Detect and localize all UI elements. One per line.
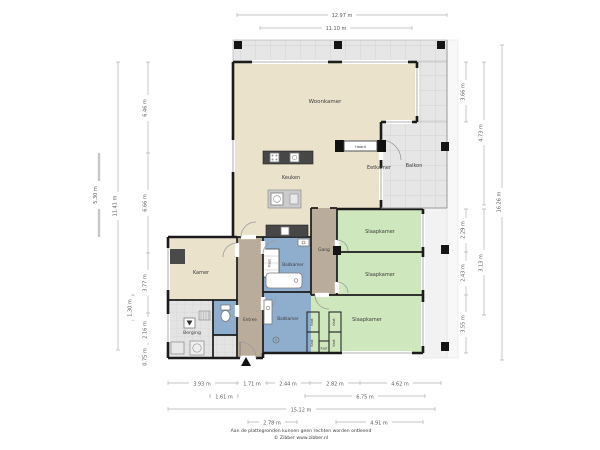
dim-bottom-seg: 1.61 m <box>215 395 233 401</box>
room-label-keuken: Keuken <box>282 175 300 181</box>
dim-left-seg: 6.46 m <box>143 99 149 117</box>
window <box>379 168 383 200</box>
dim-top-inner: 11.10 m <box>326 26 347 32</box>
window <box>342 60 408 64</box>
dim-bottom-total: 15.12 m <box>291 408 312 414</box>
floor-plan-canvas: Haard Woonkamer Keuken Eetkamer Balkon K… <box>0 0 600 450</box>
window <box>386 120 412 124</box>
window <box>421 302 425 346</box>
dim-right-3-13: 3.13 m <box>479 254 485 272</box>
room-label-kast: Kast <box>321 347 329 351</box>
room-fills <box>168 40 458 358</box>
room-bedroom-3 <box>311 295 423 353</box>
room-label-woonkamer: Woonkamer <box>309 99 343 105</box>
dim-left-seg: 2.16 m <box>143 321 149 339</box>
disclaimer-line-2: © Zibber www.zibber.nl <box>274 434 328 441</box>
window <box>166 314 170 342</box>
room-label-berging: Berging <box>183 330 201 336</box>
dim-bottom-seg: 2.82 m <box>326 382 344 388</box>
floor-plan: Haard Woonkamer Keuken Eetkamer Balkon K… <box>0 0 600 450</box>
column <box>441 342 449 351</box>
dim-bottom-seg: 1.71 m <box>243 382 261 388</box>
dim-right-total: 16.26 m <box>497 191 503 212</box>
outer-gallery-strip <box>447 40 458 358</box>
room-label-kast: Kast <box>268 259 272 267</box>
room-label-kast: Kast <box>332 339 336 347</box>
appliance-icon <box>281 227 289 235</box>
column <box>234 41 242 49</box>
toilet-tank-icon <box>221 305 230 310</box>
side-gallery <box>423 208 447 358</box>
room-entree <box>237 237 263 358</box>
fireplace-label: Haard <box>355 145 366 149</box>
window <box>231 140 235 172</box>
room-kamer <box>168 237 237 300</box>
dim-bottom-seg: 3.93 m <box>193 382 211 388</box>
dim-right-seg: 2.29 m <box>461 221 467 239</box>
column <box>437 41 445 49</box>
window <box>252 60 328 64</box>
room-label-badkamer-1: Badkamer <box>282 262 304 267</box>
fireplace: Haard <box>335 140 386 152</box>
dim-left-seg: 6.66 m <box>143 194 149 212</box>
room-label-badkamer-2: Badkamer <box>277 316 299 321</box>
column <box>333 246 341 255</box>
sink-icon <box>290 153 299 162</box>
dim-left-seg: 3.77 m <box>143 274 149 292</box>
dim-left-11-41: 11.41 m <box>113 195 119 216</box>
dim-left-5-30: 5.30 m <box>93 186 99 204</box>
dim-bottom-seg: 4.91 m <box>370 421 388 427</box>
room-label-slaapkamer-1: Slaapkamer <box>365 229 396 235</box>
room-label-slaapkamer-3: Slaapkamer <box>352 317 383 323</box>
dim-bottom-seg: 6.75 m <box>356 395 374 401</box>
room-label-kamer: Kamer <box>193 270 210 276</box>
bathtub-icon <box>266 273 302 288</box>
shaft <box>170 249 185 264</box>
column <box>441 142 449 151</box>
column <box>334 41 342 49</box>
room-label-slaapkamer-2: Slaapkamer <box>365 272 396 278</box>
disclaimer-line-1: Aan de plattegronden kunnen geen rechten… <box>231 428 372 434</box>
room-label-eetkamer: Eetkamer <box>367 165 392 171</box>
dim-top-outer: 12.97 m <box>332 13 353 19</box>
appliance-icon <box>290 194 298 204</box>
dim-bottom-seg: 2.78 m <box>263 421 281 427</box>
window <box>421 214 425 247</box>
window <box>421 257 425 290</box>
dim-right-seg: 3.55 m <box>461 315 467 333</box>
dim-right-seg: 2.43 m <box>461 264 467 282</box>
disclaimer: Aan de plattegronden kunnen geen rechten… <box>231 428 372 441</box>
room-label-kast: Kast <box>310 318 314 326</box>
room-label-gang: Gang <box>318 247 330 253</box>
room-label-kast: Kast <box>332 318 336 326</box>
room-label-entree: Entree <box>243 317 257 322</box>
dim-left-seg: 0.75 m <box>143 348 149 366</box>
dim-right-seg: 3.66 m <box>461 83 467 101</box>
window <box>166 248 170 290</box>
column <box>441 245 449 254</box>
fireplace-cap <box>377 140 386 152</box>
window <box>415 68 419 116</box>
room-label-kast: Kast <box>310 339 314 347</box>
window <box>342 351 412 355</box>
oven-icon <box>271 193 283 205</box>
sink-counter-icon <box>264 300 272 324</box>
room-label-balkon: Balkon <box>406 163 423 169</box>
dim-bottom-seg: 2.44 m <box>279 382 297 388</box>
cabinet-icon <box>171 342 184 354</box>
hob-icon <box>270 153 279 162</box>
balcony-corner <box>417 62 447 122</box>
fireplace-cap <box>335 140 344 152</box>
washer-icon <box>190 341 204 355</box>
dim-left-1-30: 1.30 m <box>128 299 134 317</box>
toilet-icon <box>221 311 230 322</box>
dim-right-4-73: 4.73 m <box>479 124 485 142</box>
sink-icon <box>298 239 309 246</box>
dim-bottom-seg: 4.62 m <box>391 382 409 388</box>
